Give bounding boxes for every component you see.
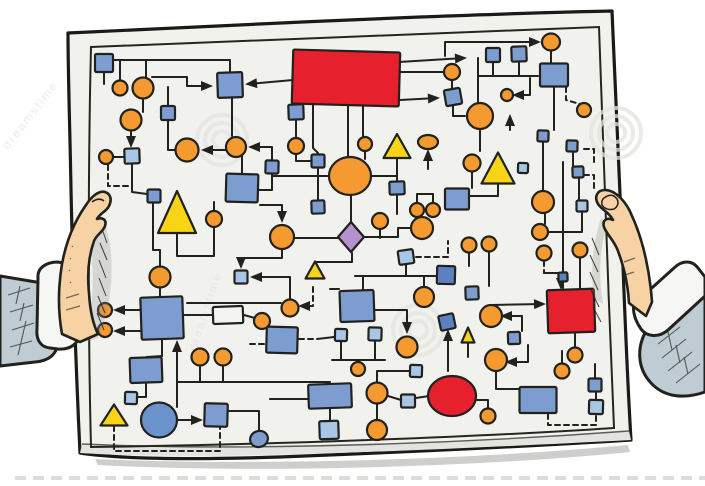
flowchart-node-blue-rect — [95, 54, 113, 72]
flowchart-node-blueD-rect — [558, 272, 567, 281]
flowchart-node-orange-circle — [485, 349, 507, 371]
flowchart-node-blue-rect — [161, 106, 175, 120]
flowchart-node-orange-circle — [367, 420, 387, 440]
flowchart-node-orange-circle — [542, 34, 560, 51]
flowchart-node-blue-rect — [540, 64, 568, 87]
flowchart-node-blueL-rect — [235, 271, 248, 284]
flowchart-node-blueL-rect — [577, 201, 588, 212]
flowchart-node-blue-rect — [444, 88, 463, 107]
flowchart-node-blueL-rect — [401, 395, 415, 408]
flowchart-node-blueL-rect — [398, 249, 415, 265]
flowchart-node-blue-rect — [130, 357, 163, 383]
flowchart-node-orange-circle — [150, 267, 171, 288]
flowchart-node-orange-circle — [464, 155, 481, 172]
flowchart-node-blue-rect — [217, 72, 243, 98]
flowchart-node-orange-circle — [482, 237, 497, 252]
flowchart-node-blue-rect — [486, 48, 500, 62]
flowchart-node-orange-circle — [414, 287, 434, 307]
flowchart-node-blueL-rect — [319, 421, 339, 440]
flowchart-node-blue-rect — [148, 190, 161, 203]
flowchart-node-blue-rect — [445, 189, 469, 210]
flowchart-node-blue-rect — [308, 383, 352, 408]
flowchart-node-orange-circle — [501, 89, 513, 101]
flowchart-node-orange-circle — [215, 349, 232, 366]
flowchart-node-blueL-rect — [125, 392, 137, 404]
flowchart-node-orange-circle — [99, 150, 113, 164]
flowchart-node-orange-circle — [532, 224, 548, 240]
flowchart-node-blue-rect — [537, 130, 548, 141]
flowchart-node-blueL-rect — [518, 163, 528, 173]
flowchart-node-blue-rect — [266, 327, 298, 354]
flowchart-node-blue-rect — [572, 166, 583, 177]
flowchart-node-blue-rect — [589, 379, 602, 392]
flowchart-node-blue-rect — [226, 174, 259, 203]
flowchart-node-blue-rect — [511, 46, 527, 62]
flowchart-node-orange-circle — [329, 157, 371, 195]
flowchart-node-orange-circle — [288, 138, 304, 154]
flowchart-node-blue-rect — [140, 296, 183, 339]
flowchart-node-red-circle — [428, 376, 476, 416]
flowchart-node-orange-circle — [537, 246, 552, 261]
flowchart-node-orange-circle — [226, 137, 246, 157]
flowchart-node-blueL-rect — [410, 365, 422, 377]
flowchart-node-orange-circle — [133, 78, 154, 99]
flowchart-node-orange-circle — [480, 305, 502, 327]
flowchart-node-orange-circle — [397, 337, 418, 358]
flowchart-node-blue-rect — [389, 181, 404, 195]
flowchart-node-red-rect — [547, 289, 595, 334]
flowchart-node-blue-rect — [311, 200, 324, 213]
flowchart-node-orange-circle — [282, 300, 299, 317]
flowchart-node-blueL-rect — [124, 148, 140, 164]
flowchart-node-orange-circle — [555, 364, 570, 379]
flowchart-node-blueL-rect — [589, 400, 603, 414]
flowchart-node-orange-circle — [577, 103, 591, 117]
flowchart-node-orange-circle — [351, 362, 365, 376]
flowchart-node-orange-circle — [462, 238, 477, 253]
flowchart-node-orange-circle — [254, 313, 270, 329]
flowchart-node-blue-rect — [508, 332, 520, 344]
flowchart-node-orange-circle — [411, 217, 433, 239]
flowchart-node-blue-rect — [465, 286, 478, 299]
flowchart-node-blue-rect — [566, 140, 577, 151]
flowchart-node-orange-circle — [206, 211, 222, 227]
flowchart-node-white-rect — [213, 306, 244, 324]
flowchart-node-orange-circle — [573, 243, 588, 258]
flowchart-node-orange-circle — [358, 137, 372, 151]
flowchart-node-blueL-rect — [368, 327, 381, 340]
flowchart-node-orange-circle — [426, 203, 440, 217]
flowchart-node-orange-circle — [121, 110, 142, 131]
flowchart-node-blueC-circle — [141, 403, 177, 438]
flowchart-node-orange-circle — [444, 64, 460, 80]
flowchart-node-orange-circle — [418, 135, 438, 149]
flowchart-node-orange-circle — [113, 81, 128, 96]
flowchart-node-orange-circle — [532, 191, 554, 213]
flowchart-node-orange-circle — [270, 225, 294, 249]
flowchart-node-orange-circle — [467, 103, 493, 129]
flowchart-node-blue-rect — [520, 387, 557, 413]
flowchart-node-orange-circle — [568, 348, 583, 363]
flowchart-node-blueD-rect — [438, 313, 456, 331]
watermark-text: dreamstime — [0, 78, 61, 152]
flowchart-node-red-rect — [292, 50, 400, 107]
flowchart-node-blue-rect — [265, 160, 278, 173]
flowchart-node-blue-rect — [204, 403, 228, 427]
flowchart-node-orange-circle — [410, 203, 424, 217]
flowchart-node-orange-circle — [192, 349, 209, 366]
flowchart-node-orange-circle — [367, 383, 388, 404]
flowchart-illustration: dreamstime dreamstime — [0, 0, 705, 486]
flowchart-node-blue-rect — [288, 104, 304, 120]
flowchart-node-blueD-rect — [437, 266, 455, 284]
flowchart-node-orange-circle — [481, 409, 496, 424]
flowchart-node-blueL-rect — [335, 329, 347, 341]
flowchart-node-orange-circle — [176, 139, 199, 162]
flowchart-node-blue-rect — [339, 290, 374, 322]
flowchart-node-blue-rect — [312, 155, 325, 168]
flowchart-node-orange-circle — [372, 213, 388, 229]
